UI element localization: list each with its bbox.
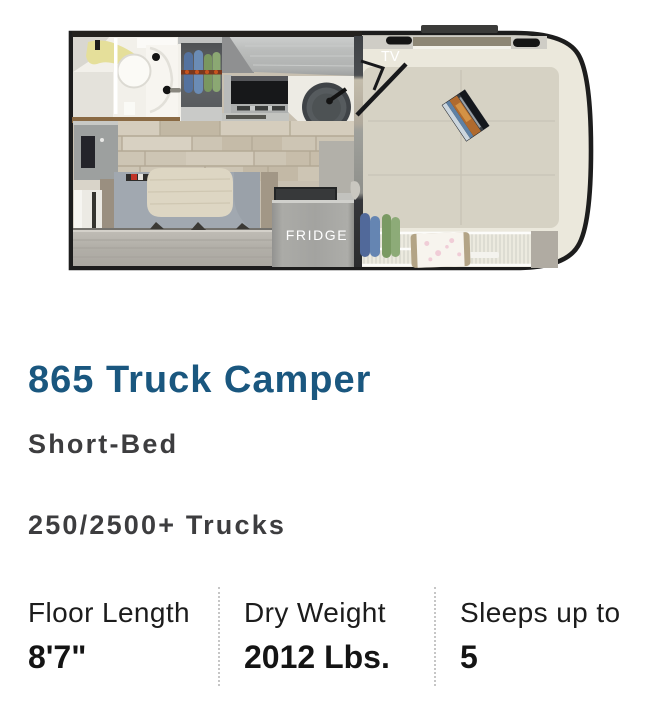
- svg-text:FRIDGE: FRIDGE: [286, 227, 349, 243]
- svg-text:TV: TV: [381, 49, 400, 65]
